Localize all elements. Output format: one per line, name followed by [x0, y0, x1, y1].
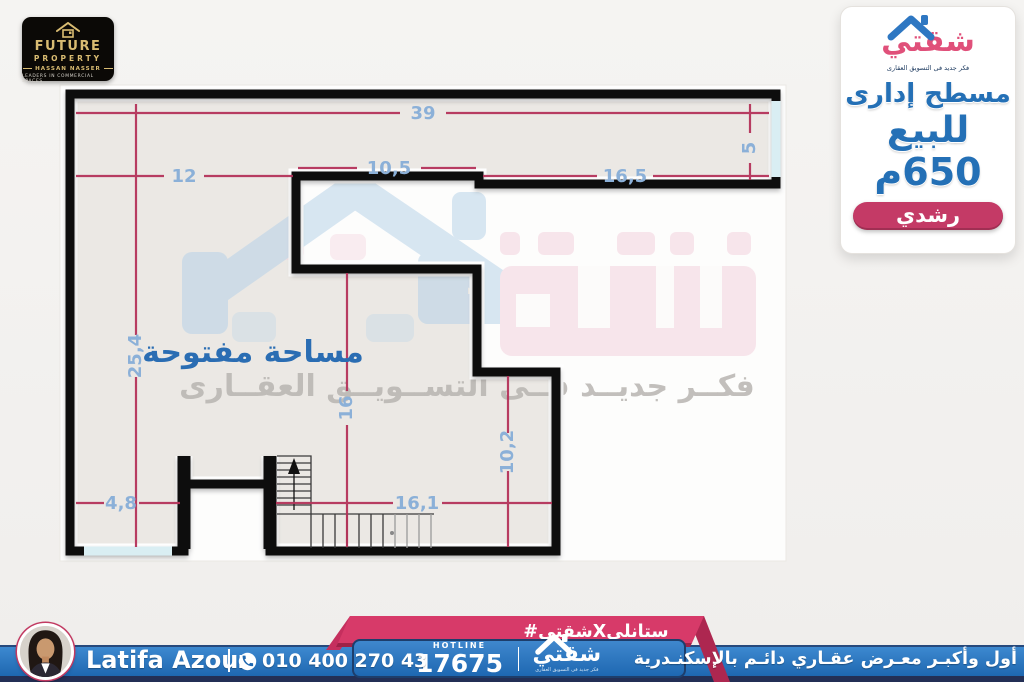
brand-logo: شقتي [881, 27, 975, 61]
offer-sale: للبيع [887, 111, 969, 151]
dim-right-edge-height: 5 [739, 142, 760, 155]
gold-house-icon [55, 22, 81, 38]
dim-mid-height: 16 [336, 395, 357, 420]
hotline-block: HOTLINE 17675 [416, 642, 503, 676]
footer-slogan: أول وأكبـر معـرض عقـاري دائـم بالإسكنـدر… [702, 649, 1017, 669]
window-right-opening [772, 101, 781, 177]
room-label: مساحة مفتوحة [142, 335, 364, 370]
offer-type: مسطح إدارى [845, 80, 1011, 109]
agent-separator [228, 649, 230, 672]
plate-separator [518, 647, 520, 671]
offer-panel: شقتي فكر جديد فى التسويق العقارى مسطح إد… [840, 6, 1016, 254]
future-property-tagline: LEADERS IN COMMERCIAL SPACES [22, 74, 114, 84]
footer-brand-logo: شقتي فكر جديد فى التسويق العقارى [532, 644, 601, 673]
watermark-tagline: فكــر جديــد فــى التســويــق العقــارى [179, 369, 755, 404]
real-estate-poster: فكــر جديــد فــى التســويــق العقــارى [0, 0, 1024, 682]
dim-bottom-left: 4,8 [105, 493, 137, 514]
dim-lower-right-height: 10,2 [497, 430, 518, 474]
brand-tagline: فكر جديد فى التسويق العقارى [887, 64, 969, 72]
future-property-logo: FUTURE PROPERTY HASSAN NASSER LEADERS IN… [22, 17, 114, 81]
dim-right-upper: 16,5 [603, 166, 647, 187]
dim-bottom-mid: 16,1 [395, 493, 439, 514]
door-bottom-opening [84, 547, 172, 556]
agent-avatar [17, 623, 74, 680]
offer-area: 650م [874, 152, 981, 194]
dim-top-total: 39 [410, 103, 435, 124]
agent-phone: 010 400 270 43 [262, 650, 427, 672]
phone-icon [238, 652, 257, 671]
future-property-subtitle: PROPERTY [34, 55, 102, 63]
dim-notch-width: 10,5 [367, 158, 411, 179]
dim-left-upper: 12 [171, 166, 196, 187]
future-property-title: FUTURE [35, 40, 102, 53]
district-badge: رشدي [853, 202, 1003, 230]
future-property-owner: HASSAN NASSER [23, 66, 113, 72]
footer-brand-tagline: فكر جديد فى التسويق العقارى [532, 668, 601, 673]
hotline-number: 17675 [416, 651, 503, 676]
